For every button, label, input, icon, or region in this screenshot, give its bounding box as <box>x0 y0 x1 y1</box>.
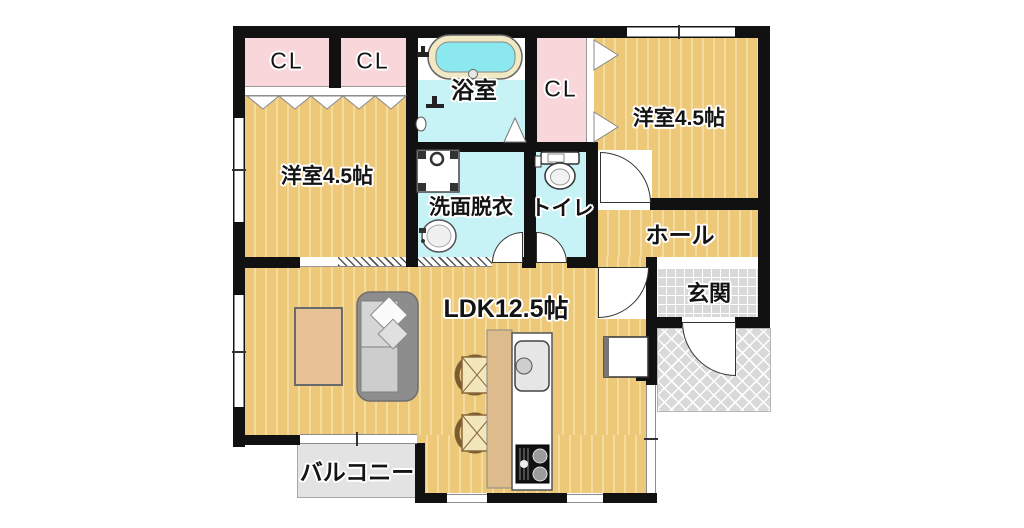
closet1-label: CL <box>270 48 303 75</box>
wall-entrance-bottom-left <box>646 317 682 328</box>
wall-ldk-top-stub1 <box>522 257 536 268</box>
window-tick <box>232 169 246 171</box>
window-tick <box>356 432 358 446</box>
bedroom-left-label: 洋室4.5帖 <box>281 160 373 190</box>
closet2-label: CL <box>356 48 389 75</box>
wall-bottom-seg2 <box>487 493 567 503</box>
toilet-label: トイレ <box>531 192 594 222</box>
wall-ldk-top-left <box>233 257 300 268</box>
entrance-label: 玄関 <box>687 276 731 308</box>
balcony-label: バルコニー <box>300 453 415 487</box>
balcony-sliding-door <box>300 434 417 444</box>
wall-bath-closet3 <box>525 38 537 148</box>
entrance-step <box>657 257 758 268</box>
window-tick <box>644 438 658 440</box>
wall-bottom-seg1 <box>415 493 447 503</box>
bathroom-label: 浴室 <box>451 71 497 105</box>
closet3-door-band <box>586 38 594 142</box>
wall-ldk-top-stub2 <box>567 257 598 268</box>
wall-ldk-right-lower <box>646 493 657 503</box>
wall-bath-bottom <box>406 142 598 152</box>
ldk-label: LDK12.5帖 <box>443 289 568 325</box>
closet3-label: CL <box>544 76 577 103</box>
floor-plan: CL CL CL 浴室 洋室4.5帖 洋室4.5帖 洗面脱衣 トイレ ホール 玄… <box>0 0 1024 528</box>
wall-balcony-jog <box>415 443 425 500</box>
window-tick <box>232 351 246 353</box>
hall-label: ホール <box>646 216 715 250</box>
closet-left-door-band <box>245 86 406 96</box>
wall-bottom-left <box>233 435 300 445</box>
window-bottom-2 <box>567 494 603 503</box>
wall-right <box>758 26 770 322</box>
window-bottom-1 <box>447 494 487 503</box>
washroom-label: 洗面脱衣 <box>429 191 513 221</box>
bedroom-right-label: 洋室4.5帖 <box>633 102 725 132</box>
ldk-floor-main <box>245 257 646 435</box>
wall-mid-left <box>406 38 418 267</box>
ldk-floor-lower <box>417 435 646 493</box>
window-bedroom-right-top <box>627 27 735 37</box>
wall-closet-divider <box>329 38 341 88</box>
wall-hall-top <box>650 198 770 210</box>
wall-cabinet-stub <box>636 371 657 381</box>
wall-entrance-bottom-right <box>735 317 770 328</box>
window-tick <box>678 25 680 39</box>
